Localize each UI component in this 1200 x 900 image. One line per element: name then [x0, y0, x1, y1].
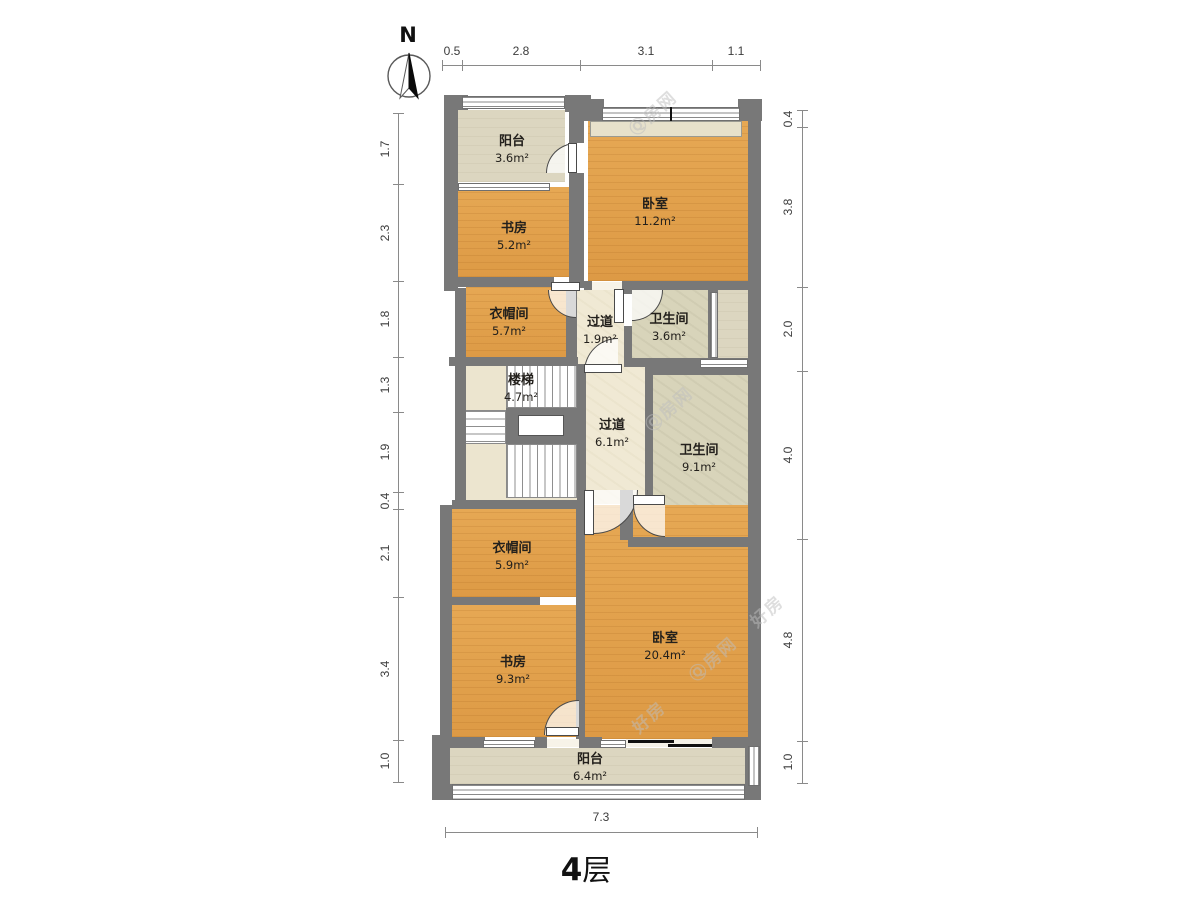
dimension-tick — [797, 371, 808, 372]
compass-north-label: N — [380, 24, 436, 46]
room-label: 书房5.2m² — [497, 220, 531, 254]
dimension-label: 2.0 — [781, 321, 795, 338]
dimension-label: 4.0 — [781, 447, 795, 464]
wall — [432, 784, 452, 800]
dimension-line — [802, 110, 803, 783]
dimension-label: 4.8 — [781, 632, 795, 649]
window — [462, 96, 565, 109]
dimension-tick — [712, 60, 713, 71]
wall — [628, 537, 748, 547]
floor-label: 4层 — [561, 847, 612, 889]
dimension-tick — [797, 127, 808, 128]
wall — [452, 597, 540, 605]
room-label: 过道6.1m² — [595, 417, 629, 451]
door-bath-main-leaf — [633, 495, 665, 505]
dimension-tick — [393, 597, 404, 598]
dimension-tick — [580, 60, 581, 71]
room-label: 书房9.3m² — [496, 654, 530, 688]
wall — [569, 95, 584, 143]
dimension-label: 3.1 — [638, 44, 655, 58]
dimension-tick — [393, 509, 404, 510]
dimension-label: 3.8 — [781, 199, 795, 216]
wall — [444, 95, 458, 291]
room-label: 楼梯4.7m² — [504, 372, 538, 406]
dimension-tick — [797, 741, 808, 742]
dimension-tick — [393, 740, 404, 741]
window — [452, 784, 745, 800]
stairs-flight — [506, 444, 577, 498]
door-hall-small-leaf — [584, 364, 622, 373]
dimension-tick — [393, 782, 404, 783]
door-closet-north-leaf — [551, 282, 580, 291]
floor-plan-canvas: N 阳台3.6m²书房5.2m²卧室11.2m²衣帽间5.7m²过道1.9m²卫… — [0, 0, 1200, 900]
wall — [712, 737, 749, 748]
dimension-label: 2.1 — [378, 545, 392, 562]
dimension-label: 7.3 — [593, 810, 610, 824]
dimension-tick — [462, 60, 463, 71]
room-label: 过道1.9m² — [583, 314, 617, 348]
dimension-tick — [393, 357, 404, 358]
door-bedroom-south-leaf — [584, 490, 594, 535]
compass-icon — [382, 46, 434, 108]
dimension-tick — [797, 539, 808, 540]
sliding-door-panel — [668, 744, 712, 747]
dimension-tick — [393, 412, 404, 413]
floor-suffix: 层 — [582, 853, 611, 887]
dimension-tick — [797, 783, 808, 784]
wall — [569, 173, 584, 288]
compass: N — [380, 24, 436, 116]
window — [748, 746, 760, 786]
dimension-tick — [797, 110, 808, 111]
wall — [622, 281, 748, 290]
dimension-line — [445, 832, 757, 833]
dimension-label: 3.4 — [378, 660, 392, 677]
wall — [584, 99, 604, 121]
door-balcony-north-leaf — [568, 143, 577, 173]
dimension-label: 1.1 — [728, 44, 745, 58]
dimension-tick — [797, 287, 808, 288]
dimension-label: 0.4 — [781, 110, 795, 127]
room-label: 卧室11.2m² — [634, 196, 675, 230]
stairs-flight — [462, 410, 506, 444]
dimension-label: 2.3 — [378, 224, 392, 241]
room-label: 卫生间9.1m² — [679, 442, 718, 476]
dimension-tick — [393, 184, 404, 185]
wall — [535, 737, 547, 748]
sliding-door-panel — [628, 740, 674, 743]
room-label: 卫生间3.6m² — [649, 311, 688, 345]
wall — [452, 500, 578, 509]
wall — [745, 784, 761, 800]
dimension-label: 1.0 — [378, 753, 392, 770]
dimension-tick — [442, 60, 443, 71]
floor-number: 4 — [561, 852, 583, 888]
dimension-label: 0.5 — [444, 44, 461, 58]
dimension-tick — [393, 492, 404, 493]
room-label: 衣帽间5.7m² — [489, 306, 528, 340]
window — [458, 183, 550, 191]
dimension-tick — [757, 827, 758, 838]
room-label: 衣帽间5.9m² — [492, 540, 531, 574]
dimension-label: 0.4 — [378, 492, 392, 509]
wall — [748, 99, 761, 750]
dimension-line — [398, 113, 399, 782]
door-threshold — [547, 739, 579, 747]
dimension-tick — [760, 60, 761, 71]
wall — [455, 288, 466, 502]
dimension-tick — [393, 113, 404, 114]
wall — [584, 281, 592, 290]
window — [483, 740, 535, 748]
wall — [440, 505, 452, 740]
room-duct-strip — [718, 286, 748, 366]
dimension-label: 1.3 — [378, 376, 392, 393]
window — [710, 292, 718, 358]
window — [700, 359, 748, 368]
wall — [577, 364, 586, 504]
dimension-tick — [445, 827, 446, 838]
room-label: 阳台3.6m² — [495, 133, 529, 167]
window — [600, 740, 626, 748]
dimension-label: 1.9 — [378, 444, 392, 461]
room-label: 阳台6.4m² — [573, 751, 607, 785]
stairs-landing-inner — [518, 415, 564, 436]
wall — [450, 737, 485, 748]
dimension-tick — [393, 281, 404, 282]
wall — [449, 357, 578, 366]
dimension-label: 2.8 — [513, 44, 530, 58]
dimension-label: 1.7 — [378, 140, 392, 157]
door-study-south-leaf — [546, 727, 579, 736]
room-label: 卧室20.4m² — [644, 630, 685, 664]
window-sill — [590, 121, 742, 137]
dimension-label: 1.8 — [378, 311, 392, 328]
wall — [452, 277, 554, 287]
dimension-label: 1.0 — [781, 754, 795, 771]
